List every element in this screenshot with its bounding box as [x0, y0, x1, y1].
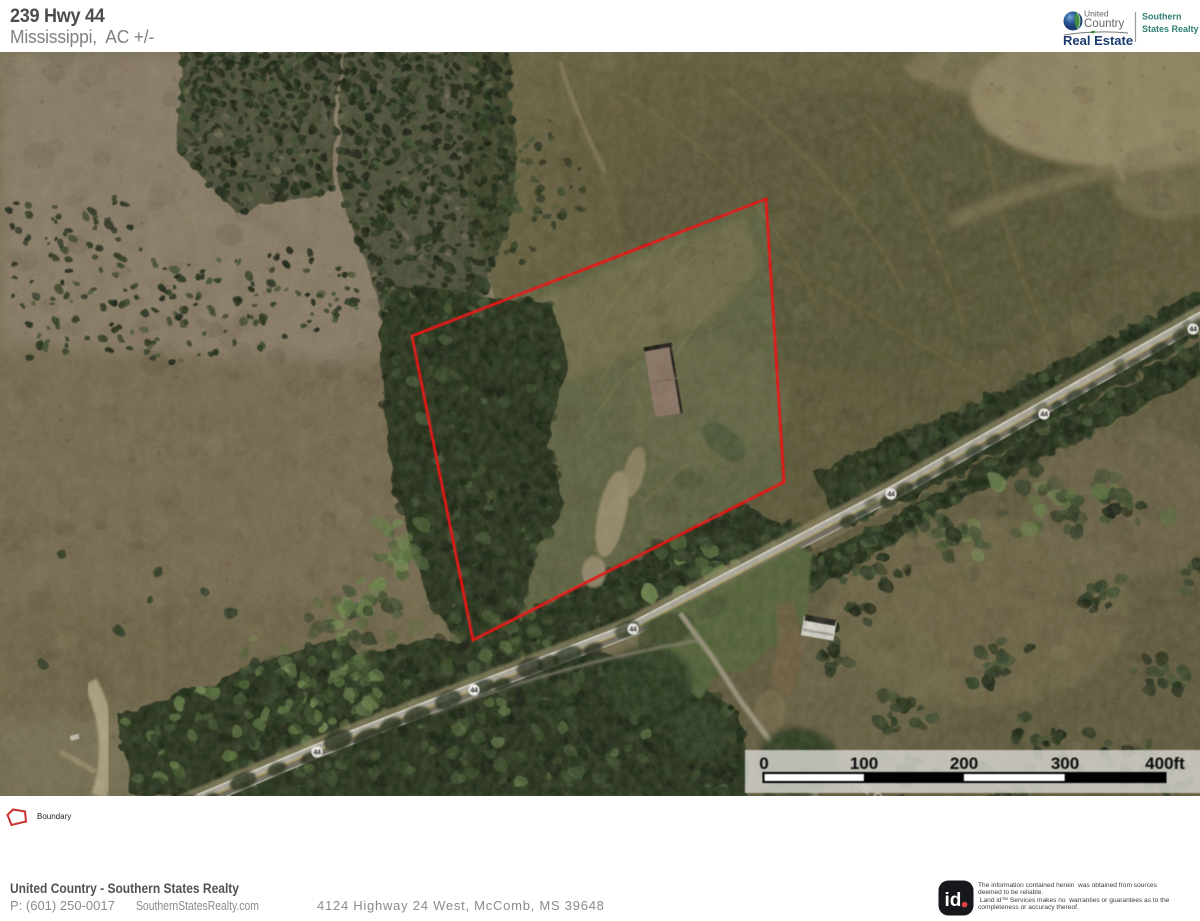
svg-text:Real Estate: Real Estate — [1063, 33, 1133, 48]
svg-text:Country: Country — [1084, 18, 1125, 30]
svg-text:Southern: Southern — [1142, 12, 1182, 22]
svg-text:United: United — [1084, 9, 1109, 19]
svg-text:States Realty: States Realty — [1142, 24, 1199, 34]
